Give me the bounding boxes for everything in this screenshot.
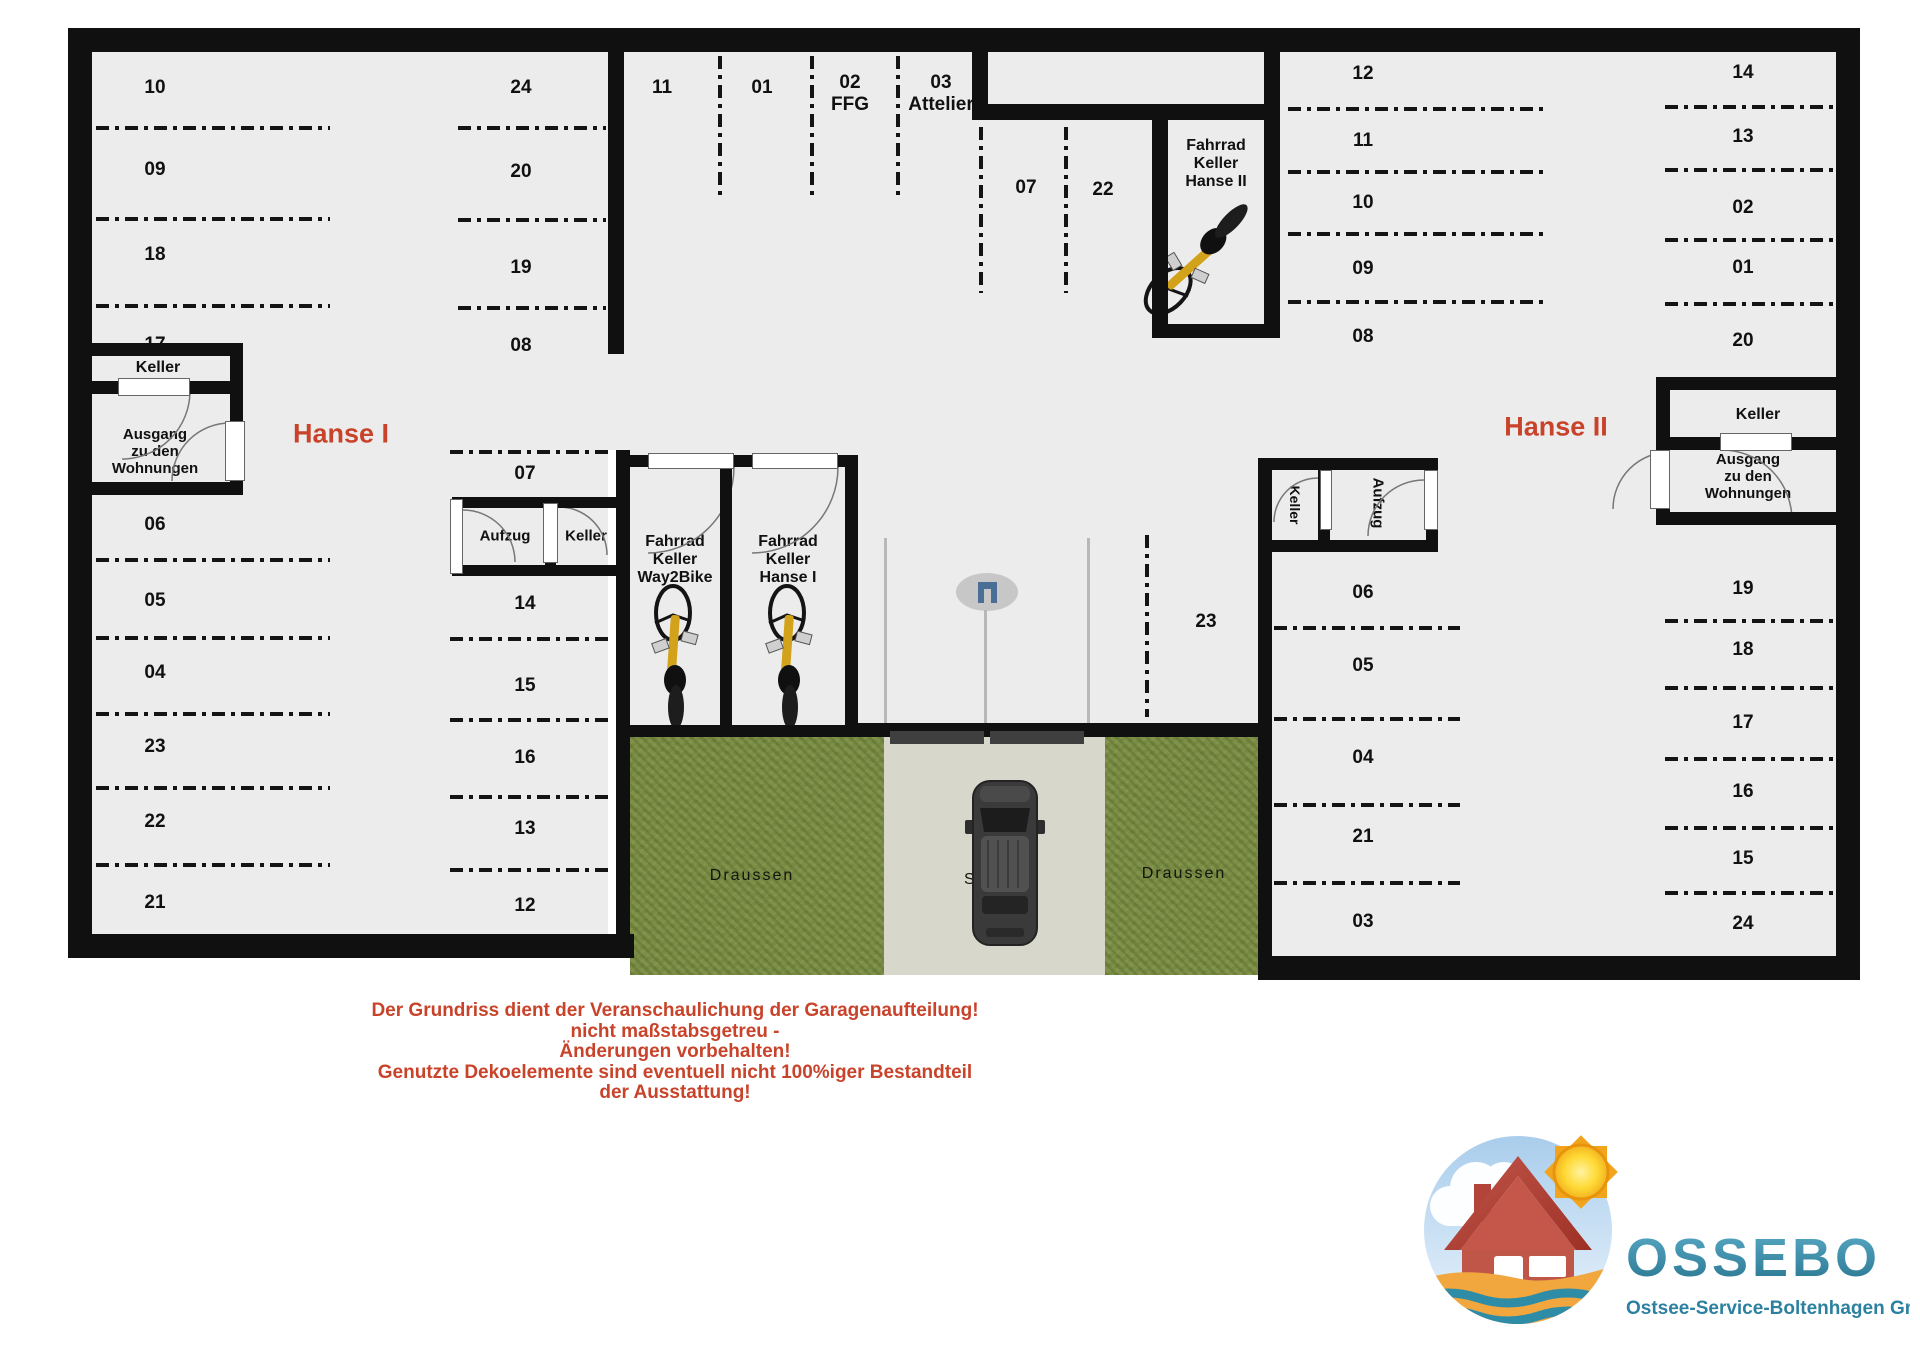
parking-divider-line — [1665, 891, 1834, 895]
parking-divider-line — [1665, 105, 1834, 109]
parking-spot-label: 09 — [1352, 258, 1373, 280]
wall — [972, 104, 1280, 120]
wall — [1258, 956, 1860, 980]
parking-spot-label: 11 — [1353, 130, 1373, 152]
floor-aisle-gap — [608, 354, 632, 450]
parking-spot-label: 21 — [1352, 826, 1373, 848]
garage-floor-plan: Draussen Straße Draussen Keller Ausgang … — [0, 0, 1920, 1358]
parking-spot-label: 12 — [514, 895, 535, 917]
floor-right-garage — [1272, 52, 1836, 956]
beach-icon — [1422, 1266, 1614, 1328]
parking-divider-line — [1274, 881, 1460, 885]
wall — [972, 28, 988, 116]
fahrrad-way2bike-label: Fahrrad Keller Way2Bike — [638, 533, 713, 587]
wall — [1152, 324, 1280, 338]
parking-divider-line — [1274, 626, 1460, 630]
keller-right-small-label: Keller — [1287, 486, 1303, 525]
parking-spot-label: 21 — [144, 892, 165, 914]
parking-spot-label: 12 — [1352, 63, 1373, 85]
hanse2-label: Hanse II — [1504, 412, 1608, 443]
parking-divider-line — [1665, 302, 1834, 306]
wall — [1656, 377, 1860, 390]
parking-divider-line — [458, 218, 606, 222]
parking-spot-label: 18 — [144, 244, 165, 266]
disclaimer-line: nicht maßstabsgetreu - — [325, 1022, 1025, 1043]
parking-spot-label: 13 — [514, 818, 535, 840]
door-frame — [1650, 450, 1670, 509]
parking-divider-line — [1665, 686, 1834, 690]
parking-spot-label: 16 — [514, 747, 535, 769]
street — [884, 733, 1105, 975]
draussen-right-label: Draussen — [1142, 865, 1226, 883]
parking-spot-label: 14 — [514, 593, 535, 615]
parking-spot-label: 01 — [1732, 257, 1753, 279]
parking-divider-line — [1288, 170, 1545, 174]
wall — [720, 455, 732, 737]
parking-divider-line — [458, 306, 606, 310]
driveway-line — [984, 610, 987, 723]
door-frame — [225, 421, 245, 481]
parking-spot-label: 03 Attelier — [908, 72, 973, 116]
parking-spot-label: 22 — [1092, 179, 1113, 201]
parking-divider-line — [1665, 238, 1834, 242]
parking-spot-label: 14 — [1732, 62, 1753, 84]
strasse-label: Straße — [964, 871, 1024, 889]
ausgang-left-label: Ausgang zu den Wohnungen — [112, 427, 198, 477]
aufzug-right-label: Aufzug — [1370, 478, 1387, 529]
parking-spot-label: 04 — [1352, 747, 1373, 769]
parking-spot-label: 23 — [1195, 611, 1216, 633]
wall — [452, 497, 618, 508]
keller-mid-label: Keller — [565, 529, 607, 546]
parking-divider-line — [1064, 127, 1068, 293]
wall — [616, 725, 858, 737]
door-frame — [648, 453, 734, 469]
parking-divider-line — [96, 863, 330, 867]
grass-left — [630, 733, 884, 975]
cloud-icon — [1430, 1162, 1526, 1232]
door-frame — [543, 503, 558, 563]
parking-divider-line — [1665, 168, 1834, 172]
parking-spot-label: 17 — [1732, 712, 1753, 734]
driveway-line — [1087, 538, 1090, 723]
parking-spot-label: 07 — [1015, 177, 1036, 199]
parking-divider-line — [96, 304, 330, 308]
wall — [1258, 458, 1438, 470]
parking-spot-label: 07 — [514, 463, 535, 485]
door-frame — [1320, 470, 1332, 530]
wall — [1258, 540, 1438, 552]
parking-divider-line — [1288, 232, 1545, 236]
sun-icon — [1544, 1135, 1618, 1209]
parking-spot-label: 24 — [510, 77, 531, 99]
parking-divider-line — [1665, 826, 1834, 830]
parking-divider-line — [1288, 107, 1545, 111]
parking-divider-line — [96, 217, 330, 221]
grass-right — [1105, 733, 1258, 975]
waves-icon — [1418, 1293, 1640, 1337]
fahrrad-hanse1-label: Fahrrad Keller Hanse I — [758, 533, 818, 587]
parking-divider-line — [450, 637, 614, 641]
parking-divider-line — [450, 718, 614, 722]
wall — [1656, 512, 1860, 525]
garage-gate — [990, 731, 1084, 744]
keller-right-label: Keller — [1736, 406, 1780, 424]
parking-divider-line — [96, 786, 330, 790]
ausgang-right-label: Ausgang zu den Wohnungen — [1705, 452, 1791, 502]
parking-divider-line — [450, 450, 614, 454]
disclaimer-line: Der Grundriss dient der Veranschaulichun… — [325, 1001, 1025, 1022]
parking-spot-label: 13 — [1732, 126, 1753, 148]
wall — [845, 455, 858, 737]
wall — [80, 482, 243, 495]
disclaimer-line: Änderungen vorbehalten! — [325, 1042, 1025, 1063]
wall — [68, 28, 1860, 52]
door-frame — [118, 378, 190, 396]
door-frame — [752, 453, 838, 469]
logo-subtitle: Ostsee-Service-Boltenhagen GmbH — [1626, 1298, 1910, 1319]
parking-spot-label: 08 — [1352, 326, 1373, 348]
parking-divider-line — [96, 712, 330, 716]
door-frame — [1424, 470, 1438, 530]
parking-spot-label: 05 — [144, 590, 165, 612]
parking-divider-line — [718, 56, 722, 195]
fahrrad-hanse2-label: Fahrrad Keller Hanse II — [1185, 137, 1246, 191]
driveway-line — [884, 538, 887, 723]
parking-spot-label: 19 — [510, 257, 531, 279]
parking-divider-line — [1145, 535, 1149, 717]
wall — [616, 450, 630, 958]
parking-spot-label: 09 — [144, 159, 165, 181]
parking-spot-label: 11 — [652, 77, 672, 99]
parking-spot-label: 04 — [144, 662, 165, 684]
wall — [452, 565, 618, 576]
door-frame — [1720, 433, 1792, 451]
parking-spot-label: 01 — [751, 77, 772, 99]
parking-divider-line — [450, 795, 614, 799]
disclaimer-line: der Ausstattung! — [325, 1083, 1025, 1104]
disclaimer-line: Genutzte Dekoelemente sind eventuell nic… — [325, 1063, 1025, 1084]
parking-spot-label: 16 — [1732, 781, 1753, 803]
door-frame — [450, 499, 463, 574]
parking-spot-label: 24 — [1732, 913, 1753, 935]
parking-spot-label: 02 FFG — [831, 72, 869, 116]
parking-divider-line — [896, 56, 900, 195]
wall — [68, 934, 634, 958]
parking-spot-label: 10 — [144, 77, 165, 99]
parking-spot-label: 06 — [144, 514, 165, 536]
parking-spot-label: 08 — [510, 335, 531, 357]
wall — [1152, 116, 1168, 338]
parking-spot-label: 15 — [1732, 848, 1753, 870]
parking-spot-label: 06 — [1352, 582, 1373, 604]
parking-divider-line — [96, 558, 330, 562]
ossebo-logo: OSSEBO Ostsee-Service-Boltenhagen GmbH — [1398, 1128, 1910, 1356]
logo-wordmark: OSSEBO — [1626, 1228, 1881, 1288]
keller-left-label: Keller — [136, 359, 180, 377]
parking-divider-line — [810, 56, 814, 195]
parking-spot-label: 03 — [1352, 911, 1373, 933]
parking-spot-label: 05 — [1352, 655, 1373, 677]
aufzug-mid-label: Aufzug — [480, 529, 531, 546]
parking-spot-label: 18 — [1732, 639, 1753, 661]
parking-spot-label: 15 — [514, 675, 535, 697]
disclaimer-text: Der Grundriss dient der Veranschaulichun… — [325, 1001, 1025, 1104]
hanse1-label: Hanse I — [293, 419, 389, 450]
parking-divider-line — [1665, 619, 1834, 623]
parking-divider-line — [450, 868, 614, 872]
parking-divider-line — [1288, 300, 1545, 304]
parking-divider-line — [96, 636, 330, 640]
wall — [1264, 28, 1280, 338]
wall — [608, 28, 624, 354]
parking-spot-label: 02 — [1732, 197, 1753, 219]
parking-spot-label: 19 — [1732, 578, 1753, 600]
parking-divider-line — [1274, 717, 1460, 721]
parking-divider-line — [1274, 803, 1460, 807]
parking-divider-line — [458, 126, 606, 130]
house-icon — [1444, 1156, 1592, 1298]
parking-divider-line — [979, 127, 983, 293]
parking-spot-label: 22 — [144, 811, 165, 833]
draussen-left-label: Draussen — [710, 867, 794, 885]
parking-spot-label: 23 — [144, 736, 165, 758]
parking-spot-label: 20 — [1732, 330, 1753, 352]
parking-spot-label: 17 — [144, 334, 165, 356]
wall — [1258, 458, 1272, 972]
wall — [1836, 28, 1860, 980]
garage-gate — [890, 731, 984, 744]
parking-divider-line — [1665, 757, 1834, 761]
parking-spot-label: 20 — [510, 161, 531, 183]
parking-spot-label: 10 — [1352, 192, 1373, 214]
parking-divider-line — [96, 126, 330, 130]
